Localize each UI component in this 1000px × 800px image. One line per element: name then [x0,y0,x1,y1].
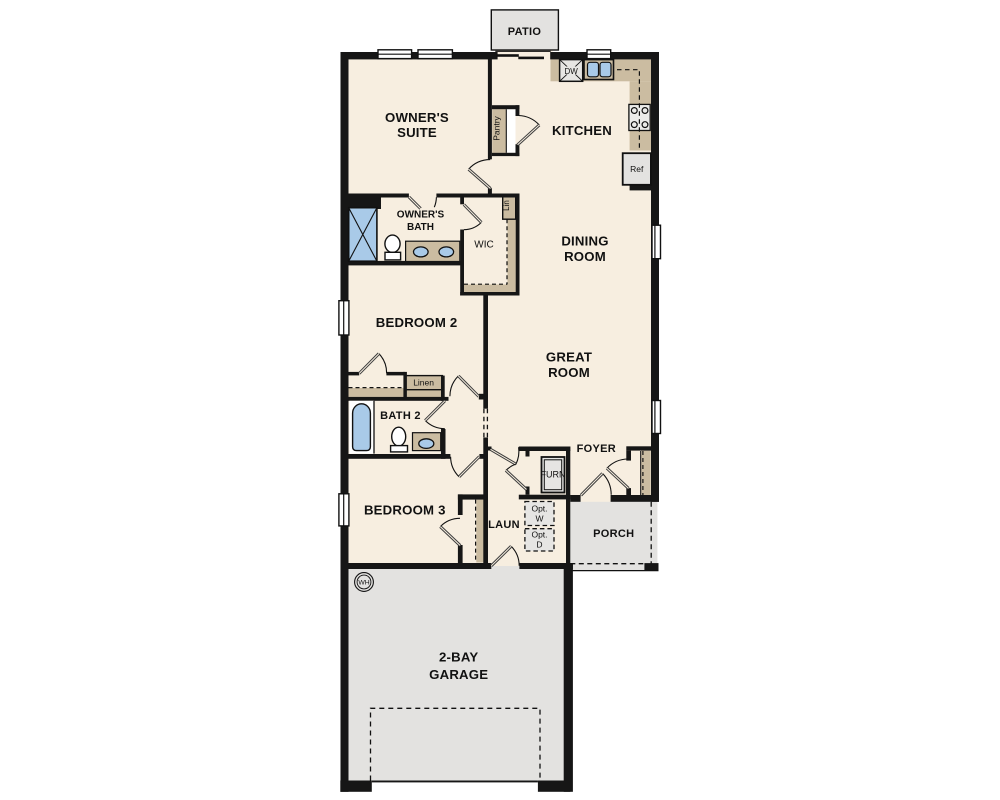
svg-text:W: W [535,514,543,524]
svg-text:BATH 2: BATH 2 [380,410,421,422]
svg-text:Pantry: Pantry [492,115,502,140]
svg-text:D: D [536,540,542,550]
svg-text:WIC: WIC [474,240,493,251]
svg-text:PATIO: PATIO [508,26,542,38]
svg-text:Opt.: Opt. [531,504,547,514]
svg-text:SUITE: SUITE [397,125,437,140]
svg-text:DW: DW [565,67,579,76]
svg-text:BEDROOM 3: BEDROOM 3 [364,503,446,518]
svg-text:Lin: Lin [502,200,511,211]
svg-text:ROOM: ROOM [548,365,590,380]
svg-text:Opt.: Opt. [531,530,547,540]
svg-text:Ref: Ref [630,164,644,174]
svg-text:PORCH: PORCH [593,528,634,540]
svg-text:DINING: DINING [561,234,608,249]
svg-text:FURN: FURN [541,470,566,480]
svg-text:FOYER: FOYER [577,443,616,455]
svg-text:Linen: Linen [413,378,434,388]
svg-text:LAUN: LAUN [488,519,520,531]
svg-text:BEDROOM 2: BEDROOM 2 [376,315,458,330]
svg-text:WH: WH [358,580,369,587]
svg-text:BATH: BATH [407,222,434,233]
svg-text:2-BAY: 2-BAY [439,650,478,665]
svg-text:GREAT: GREAT [546,350,592,365]
svg-text:ROOM: ROOM [564,249,606,264]
svg-text:OWNER'S: OWNER'S [385,110,449,125]
svg-text:GARAGE: GARAGE [429,667,488,682]
svg-text:OWNER'S: OWNER'S [397,210,445,221]
svg-text:KITCHEN: KITCHEN [552,123,612,138]
